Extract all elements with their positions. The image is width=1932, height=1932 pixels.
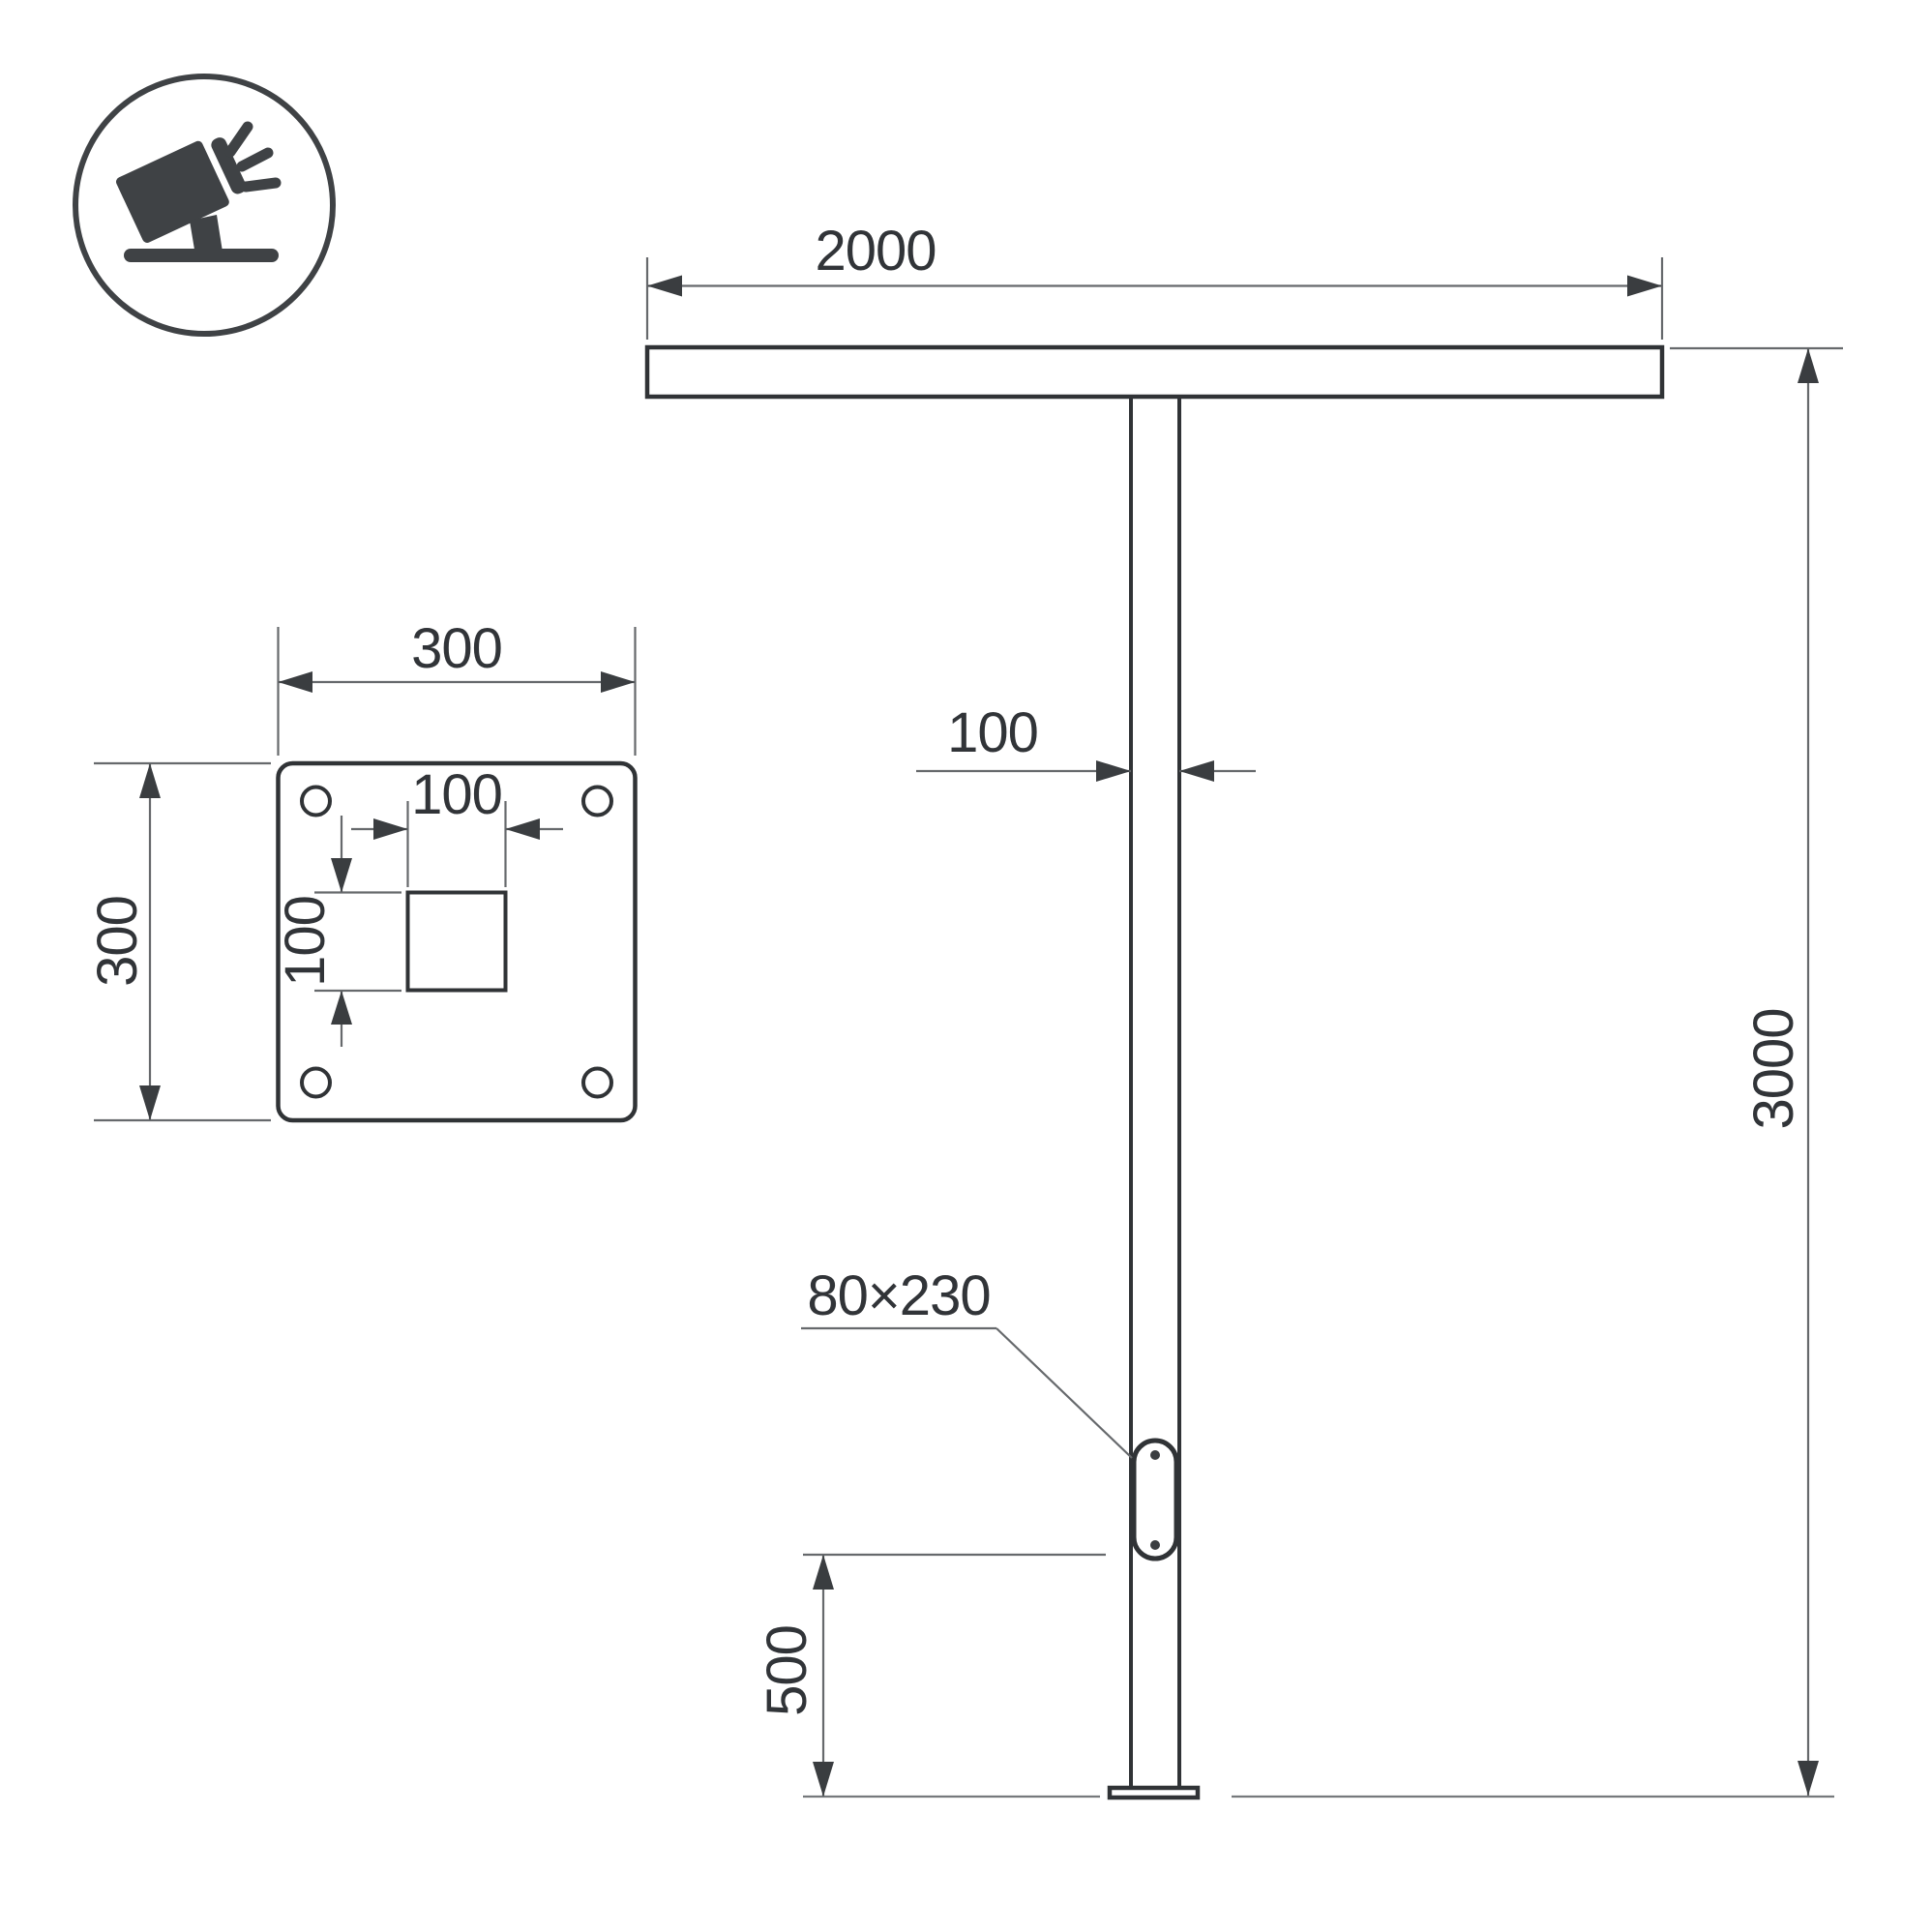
arrowhead-down [1798, 1761, 1819, 1796]
floodlight-base-bar [124, 249, 279, 262]
arrowhead-up [813, 1555, 834, 1590]
arrowhead-left [647, 276, 682, 297]
dim-plate-width: 300 [279, 617, 636, 756]
arrowhead-right [601, 671, 636, 693]
leader-line [996, 1328, 1132, 1458]
arrowhead-up [1798, 348, 1819, 383]
bolt-hole-bottom-left [302, 1069, 330, 1097]
arrowhead-left [279, 671, 313, 693]
dim-label-plate-height: 300 [86, 896, 149, 987]
door-screw-bottom [1150, 1540, 1160, 1550]
floodlight-icon [75, 76, 333, 334]
arrowhead-left-pointing [506, 818, 541, 840]
dim-overall-height: 3000 [1670, 348, 1843, 1796]
technical-drawing-canvas: 2000 100 3000 80×230 500 [0, 0, 1932, 1932]
crossbar-luminaire [647, 347, 1662, 397]
arrowhead-left [1096, 760, 1131, 782]
arrowhead-down [813, 1762, 834, 1797]
arrowhead-down-pointing [331, 858, 352, 893]
door-screw-top [1150, 1450, 1160, 1460]
dim-label-cutout-height: 100 [274, 896, 337, 987]
arrowhead-right-pointing [373, 818, 408, 840]
light-ray [242, 153, 268, 166]
dim-label-cutout-width: 100 [411, 763, 502, 826]
dim-access-door-height: 500 [756, 1555, 1106, 1797]
arrowhead-down [139, 1085, 161, 1120]
light-ray [230, 127, 248, 152]
center-cutout [408, 893, 506, 991]
leader-access-door: 80×230 [801, 1264, 1132, 1458]
bolt-hole-top-left [302, 788, 330, 816]
arrowhead-up [139, 763, 161, 798]
dim-label-access-door-size: 80×230 [807, 1264, 990, 1327]
pole-base-plate-edge [1110, 1788, 1198, 1798]
dim-label-crossbar-width: 2000 [815, 220, 936, 282]
dim-crossbar-width: 2000 [647, 220, 1662, 340]
dim-pole-width: 100 [916, 701, 1256, 782]
dim-label-pole-width: 100 [947, 701, 1038, 764]
bolt-hole-bottom-right [583, 1069, 611, 1097]
arrowhead-up-pointing [331, 991, 352, 1025]
arrowhead-right [1179, 760, 1214, 782]
dim-cutout-width: 100 [351, 763, 563, 887]
dim-plate-height: 300 [86, 763, 271, 1120]
dim-cutout-height: 100 [274, 816, 401, 1047]
light-ray [246, 183, 276, 187]
dim-label-door-height: 500 [756, 1625, 818, 1716]
arrowhead-right [1627, 276, 1662, 297]
bolt-hole-top-right [583, 788, 611, 816]
dim-label-plate-width: 300 [411, 617, 502, 680]
dim-label-overall-height: 3000 [1742, 1008, 1805, 1129]
technical-drawing-page: 2000 100 3000 80×230 500 [0, 0, 1932, 1932]
